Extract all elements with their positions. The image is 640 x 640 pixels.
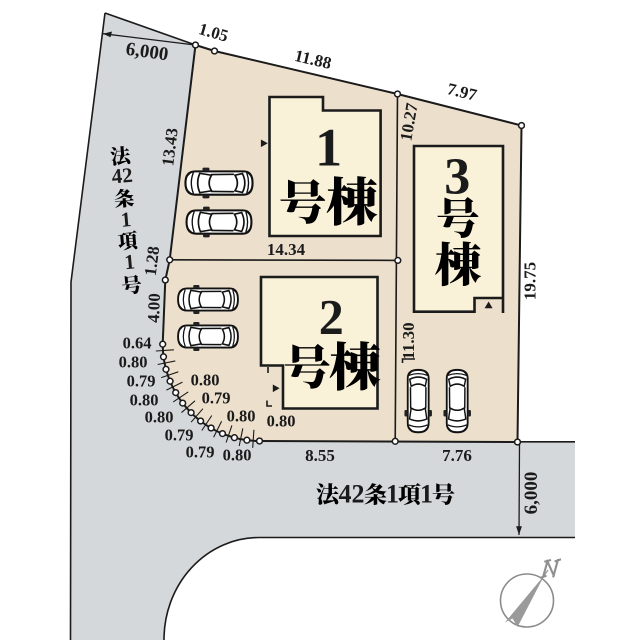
svg-text:14.34: 14.34: [267, 240, 306, 259]
svg-text:7.76: 7.76: [442, 446, 472, 465]
svg-text:1: 1: [123, 249, 136, 274]
svg-text:0.80: 0.80: [119, 353, 148, 372]
svg-text:3: 3: [444, 149, 470, 206]
svg-text:11.30: 11.30: [399, 322, 418, 359]
svg-text:2: 2: [319, 289, 344, 345]
svg-text:0.64: 0.64: [123, 334, 152, 353]
svg-text:19.75: 19.75: [521, 262, 540, 300]
svg-text:0.80: 0.80: [267, 412, 296, 431]
svg-text:0.80: 0.80: [191, 371, 220, 390]
svg-text:1: 1: [386, 480, 399, 509]
svg-text:0.80: 0.80: [223, 446, 252, 465]
svg-text:0.79: 0.79: [202, 389, 231, 408]
svg-text:1: 1: [120, 207, 133, 232]
svg-text:0.80: 0.80: [227, 407, 256, 426]
svg-text:4.00: 4.00: [144, 293, 164, 323]
svg-text:42: 42: [111, 163, 134, 189]
svg-text:8.55: 8.55: [305, 446, 335, 465]
svg-text:0.79: 0.79: [127, 372, 156, 391]
svg-text:6,000: 6,000: [521, 472, 542, 515]
svg-text:0.80: 0.80: [145, 408, 174, 427]
svg-text:42: 42: [339, 480, 365, 509]
svg-text:1: 1: [420, 480, 433, 509]
svg-text:1.28: 1.28: [141, 245, 163, 277]
svg-text:1: 1: [315, 118, 342, 178]
svg-text:0.79: 0.79: [186, 443, 215, 462]
